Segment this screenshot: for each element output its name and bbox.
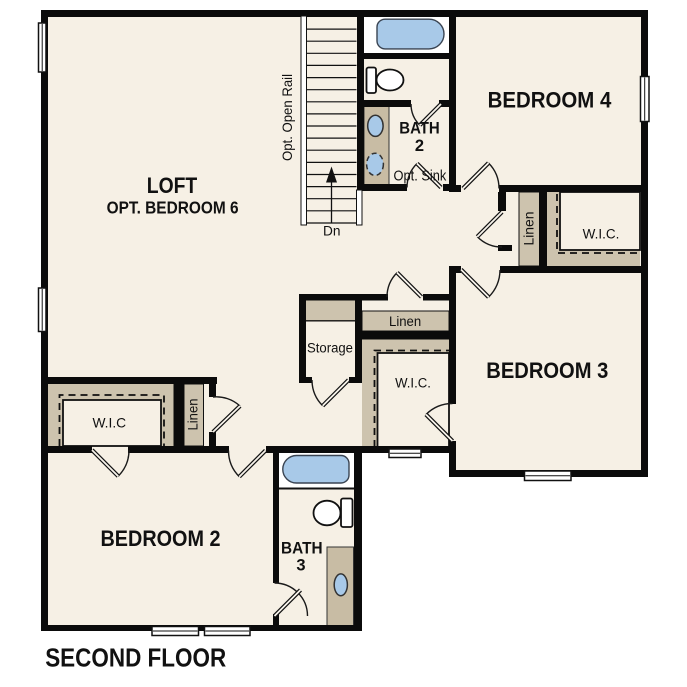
svg-text:Opt. Open Rail: Opt. Open Rail [279,74,295,161]
svg-text:OPT. BEDROOM 6: OPT. BEDROOM 6 [107,198,239,218]
svg-text:Linen: Linen [389,314,421,329]
svg-text:W.I.C.: W.I.C. [583,227,620,242]
svg-text:LOFT: LOFT [147,173,198,198]
svg-text:BEDROOM 4: BEDROOM 4 [488,87,612,112]
svg-text:Storage: Storage [307,341,353,356]
svg-text:Opt. Sink: Opt. Sink [394,169,447,185]
svg-text:W.I.C: W.I.C [92,415,126,431]
svg-text:BEDROOM 2: BEDROOM 2 [101,526,221,551]
svg-text:BEDROOM 3: BEDROOM 3 [486,358,608,383]
svg-text:BATH: BATH [399,120,440,138]
svg-text:SECOND FLOOR: SECOND FLOOR [45,643,226,673]
svg-text:Linen: Linen [522,212,537,246]
svg-text:2: 2 [415,137,424,155]
svg-text:Dn: Dn [323,223,341,238]
svg-text:Linen: Linen [186,399,201,431]
svg-text:3: 3 [296,556,305,574]
svg-text:W.I.C.: W.I.C. [395,376,431,391]
svg-text:BATH: BATH [281,540,323,558]
